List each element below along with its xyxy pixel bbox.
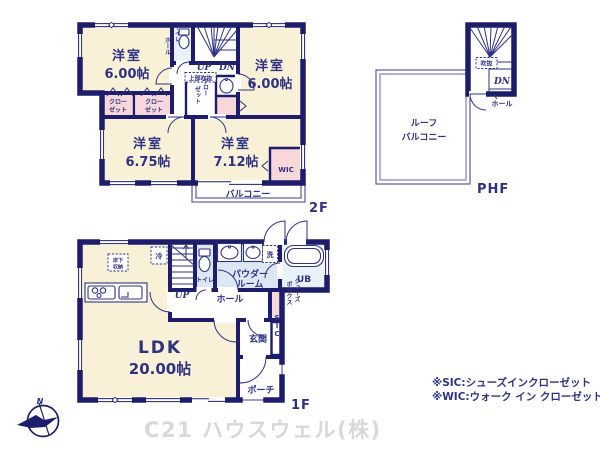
door-arc	[286, 221, 307, 242]
kitchen-counter	[85, 283, 147, 302]
wic-label: WIC	[278, 166, 293, 174]
compass-north-label: N	[37, 397, 44, 406]
underfloor-label: 床下	[113, 257, 123, 264]
room-name: 洋室	[221, 136, 251, 152]
wic-note: ※WIC:ウォーク イン クローゼット	[432, 390, 600, 403]
floor2-label: 2F	[309, 201, 329, 216]
shoes-box-label: シューズ	[293, 278, 300, 303]
closet-2f-3	[216, 96, 238, 117]
door-arc	[264, 221, 285, 242]
underfloor-label: 収納	[113, 264, 123, 271]
room-size: 6.00帖	[247, 76, 292, 92]
dn-label-phf: DN	[493, 77, 511, 87]
floorplan-image: 洋室 6.00帖 洋室 6.00帖 洋室 6.75帖 洋室 7.12帖 WIC …	[0, 0, 600, 450]
phf-label: PHF	[477, 182, 509, 197]
room-name: 洋室	[133, 136, 163, 152]
sink-icon	[119, 286, 142, 299]
entrance-door-arc	[240, 357, 266, 383]
void-label-phf: 吹抜	[480, 60, 493, 68]
porch-label: ポーチ	[247, 384, 274, 396]
washbasin-icon-2f	[220, 79, 233, 94]
compass-needle	[17, 415, 58, 428]
stove-icon	[88, 286, 115, 299]
roof-balcony-label: バルコニー	[402, 132, 447, 143]
room-name: 洋室	[112, 48, 142, 64]
room-size: 6.00帖	[104, 66, 149, 82]
balcony-label-2f: バルコニー	[226, 189, 271, 200]
powder-room-label: ルーム	[237, 279, 264, 290]
closet-label: ゼット	[145, 106, 163, 114]
floor1-plan: LDK 20.00帖 冷 床下 収納 UP トイレ パウダー ルーム 洗 UB …	[77, 221, 330, 413]
dn-label-2f: DN	[218, 63, 236, 73]
closet-label: クロー	[109, 98, 127, 106]
room-name: 洋室	[255, 58, 285, 74]
roof-balcony-label: ルーフ	[411, 118, 437, 129]
genkan-label: 玄関	[249, 333, 267, 345]
powder-room-label: パウダー	[232, 268, 268, 280]
void-above-label: 上部吹抜	[188, 75, 213, 83]
closet-label: ゼット	[109, 106, 127, 114]
room-size: 7.12帖	[213, 154, 258, 170]
floor2-plan: 洋室 6.00帖 洋室 6.00帖 洋室 6.75帖 洋室 7.12帖 WIC …	[77, 22, 329, 216]
up-label-1f: UP	[175, 291, 190, 301]
hall-label-phf: ホール	[492, 100, 513, 108]
compass-icon: N	[17, 397, 59, 437]
hall-label-2f: ホール	[164, 37, 171, 55]
vanity-sink-icons	[218, 244, 263, 262]
ldk-name: LDK	[138, 338, 182, 358]
sic-note: ※SIC:シューズインクローゼット	[432, 376, 591, 389]
company-logo: C21 ハウスウェル(株)	[144, 418, 382, 442]
toilet-icon-2f	[179, 29, 189, 49]
hall-label-1f: ホール	[216, 294, 243, 305]
toilet-icon-1f	[199, 249, 210, 272]
room-size: 6.75帖	[125, 154, 170, 170]
bathtub-icon	[285, 246, 324, 267]
sic-label: SIC	[273, 314, 281, 338]
ldk-size: 20.00帖	[129, 360, 191, 378]
closet-label: クロー	[145, 98, 163, 106]
up-label-2f: UP	[197, 63, 212, 73]
fridge-label: 冷	[156, 252, 163, 261]
floor1-label: 1F	[291, 398, 311, 413]
toilet-label-2f: トイレ	[174, 24, 181, 42]
phf-plan: 吹抜 DN ホール ルーフ バルコニー PHF	[376, 25, 514, 197]
washer-label: 洗	[267, 250, 274, 259]
shoes-box-label: ボックス	[285, 280, 292, 305]
toilet-label-1f: トイレ	[196, 277, 214, 284]
legend-notes: ※SIC:シューズインクローゼット ※WIC:ウォーク イン クローゼット	[432, 376, 600, 403]
closet-label-vertical: ゼット	[194, 85, 201, 104]
